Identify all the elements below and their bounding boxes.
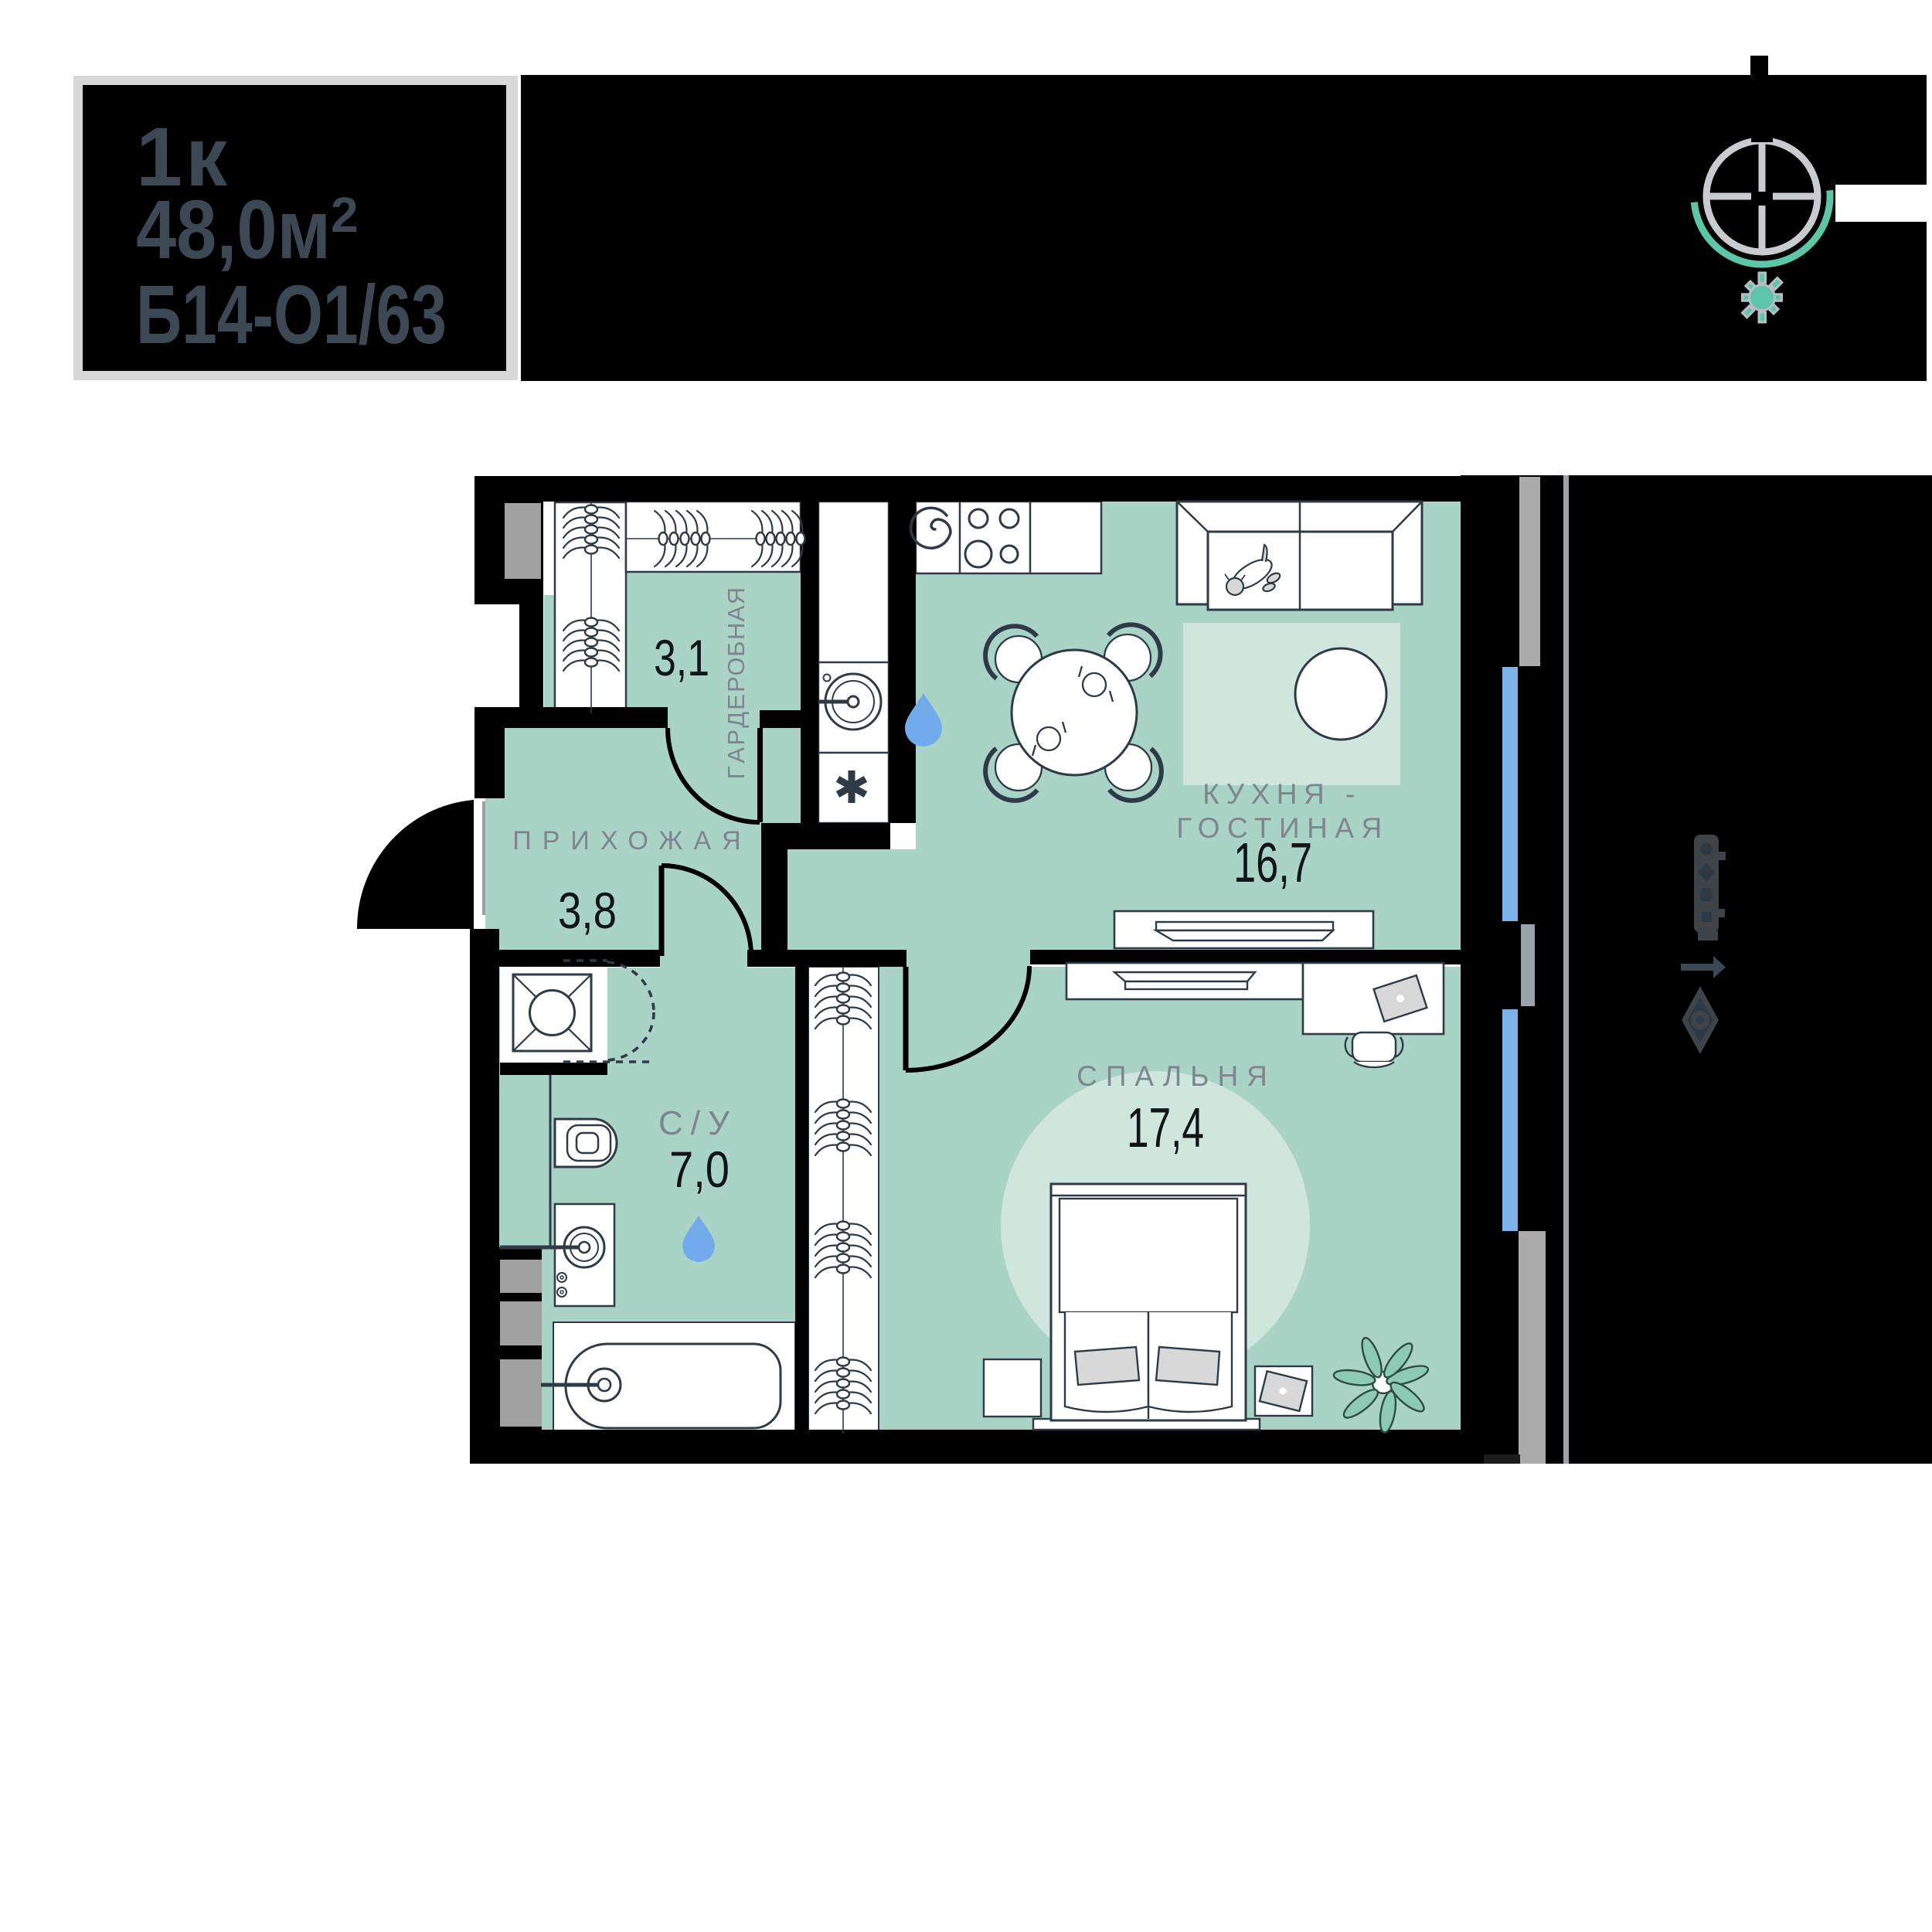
svg-text:Р: Р <box>723 676 750 692</box>
svg-text:Н: Н <box>723 623 750 640</box>
svg-text:А: А <box>723 747 750 763</box>
svg-text:Д: Д <box>723 712 750 728</box>
svg-text:3,8: 3,8 <box>558 882 617 939</box>
svg-text:А: А <box>723 605 750 621</box>
svg-text:Б: Б <box>723 641 750 657</box>
svg-text:О: О <box>723 658 750 676</box>
svg-text:3,1: 3,1 <box>654 629 709 686</box>
svg-text:16,7: 16,7 <box>1233 832 1312 894</box>
svg-text:СПАЛЬНЯ: СПАЛЬНЯ <box>1077 1060 1276 1092</box>
svg-text:Е: Е <box>723 694 750 710</box>
svg-text:ПРИХОЖАЯ: ПРИХОЖАЯ <box>512 826 751 855</box>
svg-text:48,0м2: 48,0м2 <box>136 182 359 276</box>
svg-text:Р: Р <box>723 730 750 746</box>
svg-text:Б14-О1/63: Б14-О1/63 <box>136 267 447 361</box>
svg-text:7,0: 7,0 <box>669 1141 730 1198</box>
svg-text:Я: Я <box>723 587 750 604</box>
svg-text:Г: Г <box>723 766 750 779</box>
svg-text:КУХНЯ -: КУХНЯ - <box>1202 778 1362 810</box>
svg-text:С/У: С/У <box>658 1104 737 1142</box>
svg-text:17,4: 17,4 <box>1127 1097 1204 1159</box>
